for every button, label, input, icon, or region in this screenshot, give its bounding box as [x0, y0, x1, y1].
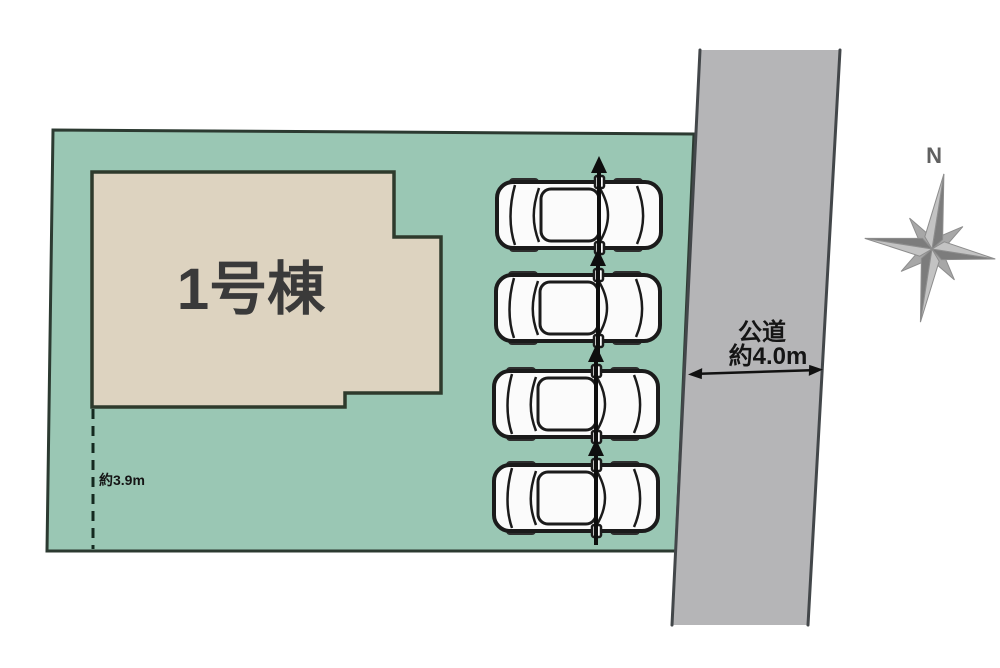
- road: 公道 約4.0m: [672, 50, 840, 625]
- compass-rose-icon: [853, 163, 1000, 332]
- compass: N: [853, 143, 1000, 332]
- building-1-label: 1号棟: [177, 257, 326, 322]
- compass-north-label: N: [926, 143, 942, 168]
- road-name-label: 公道: [738, 318, 786, 346]
- site-plan-canvas: 公道 約4.0m 1号棟 約3.9m N: [0, 0, 1000, 668]
- site-plan: 公道 約4.0m 1号棟 約3.9m N: [0, 0, 1000, 668]
- road-width-label: 約4.0m: [729, 342, 808, 370]
- setback-dimension-label: 約3.9m: [99, 472, 145, 488]
